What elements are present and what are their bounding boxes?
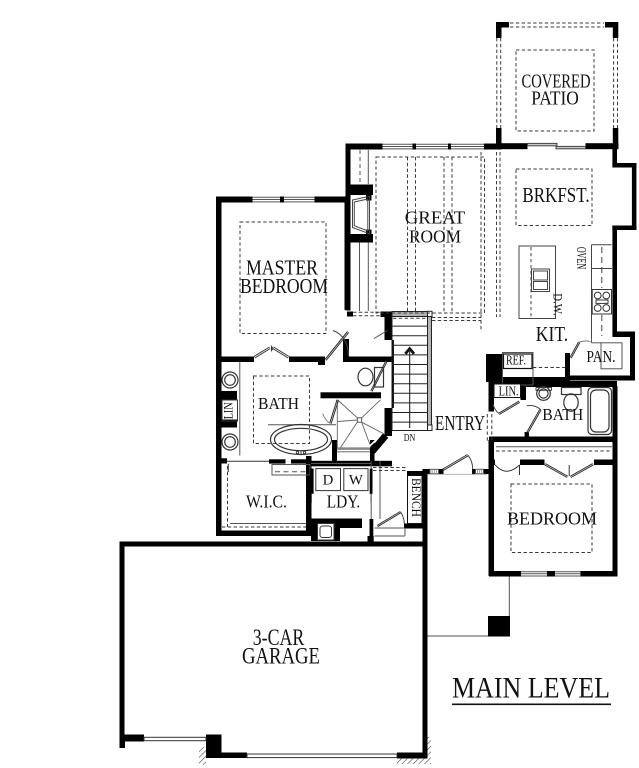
svg-text:MAIN LEVEL: MAIN LEVEL <box>452 672 610 705</box>
svg-text:W.I.C.: W.I.C. <box>246 492 287 512</box>
svg-text:GREAT: GREAT <box>405 207 466 227</box>
svg-text:OVEN: OVEN <box>574 247 589 270</box>
svg-text:LIN: LIN <box>221 402 235 420</box>
svg-text:ROOM: ROOM <box>409 227 461 247</box>
svg-text:D: D <box>323 473 334 489</box>
svg-text:D.W.: D.W. <box>551 293 566 315</box>
svg-text:GARAGE: GARAGE <box>242 644 320 669</box>
svg-text:REF.: REF. <box>506 353 526 368</box>
svg-text:BEDROOM: BEDROOM <box>240 274 328 298</box>
svg-text:ENTRY: ENTRY <box>435 411 485 435</box>
svg-text:BATH: BATH <box>542 405 583 424</box>
svg-text:BENCH: BENCH <box>409 478 423 517</box>
svg-text:PATIO: PATIO <box>531 88 579 110</box>
svg-text:LDY.: LDY. <box>327 492 361 512</box>
svg-text:LIN.: LIN. <box>499 384 519 399</box>
svg-text:DN: DN <box>404 433 416 444</box>
svg-text:BEDROOM: BEDROOM <box>507 509 597 529</box>
svg-text:PAN.: PAN. <box>587 347 616 366</box>
svg-text:KIT.: KIT. <box>536 322 568 346</box>
svg-text:BRKFST.: BRKFST. <box>522 183 589 207</box>
svg-text:BATH: BATH <box>258 394 299 413</box>
svg-text:W: W <box>349 473 363 489</box>
